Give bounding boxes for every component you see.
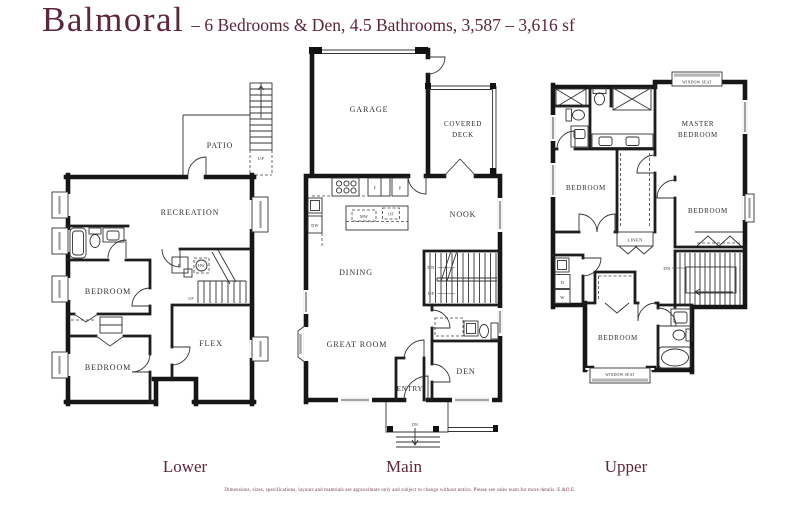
oven-label: OF [388, 212, 394, 217]
main-stairs [424, 251, 500, 305]
room-label-bedroom-a: BEDROOM [85, 287, 131, 296]
sink-icon [103, 228, 124, 242]
floor-label-main: Main [386, 457, 422, 477]
sink-icon [571, 126, 588, 147]
lower-exterior-stairs [250, 83, 272, 175]
french-doors [444, 159, 476, 176]
stairs-dn-label: DN [663, 266, 671, 271]
covered-deck-outline [425, 83, 496, 174]
room-label-covered-deck-2: DECK [452, 131, 474, 139]
porch-dn-label: DN [412, 423, 418, 427]
room-label-bedroom-a: BEDROOM [566, 184, 606, 192]
room-label-bedroom-b: BEDROOM [688, 207, 728, 215]
fridge-label: F [374, 186, 377, 191]
floor-label-lower: Lower [163, 457, 207, 477]
linen-label: LINEN [627, 238, 643, 243]
lower-closets [71, 314, 124, 346]
master-ensuite [556, 88, 653, 228]
room-label-covered-deck-1: COVERED [444, 120, 482, 128]
floor-label-upper: Upper [605, 457, 647, 477]
room-label-bedroom-b: BEDROOM [85, 363, 131, 372]
freezer-label: F [178, 263, 181, 268]
double-vanity [592, 134, 653, 148]
dryer-label: D [561, 280, 565, 285]
room-label-entry: ENTRY [397, 385, 423, 393]
room-label-great-room: GREAT ROOM [327, 340, 388, 349]
bedroom-b-closet [695, 232, 743, 246]
hot-water-label: HW [198, 264, 205, 268]
room-label-bedroom-c: BEDROOM [598, 334, 638, 342]
bedroom-c-closet [599, 276, 633, 313]
garage-door [322, 50, 415, 54]
washer-label: W [560, 295, 565, 300]
room-label-recreation: RECREATION [161, 208, 220, 217]
room-label-master-1: MASTER [682, 120, 715, 128]
pantry-label: P [399, 186, 402, 191]
disclaimer-text: Dimensions, sizes, specifications, layou… [224, 488, 575, 493]
toilet-icon [566, 109, 585, 121]
room-label-patio: PATIO [207, 141, 233, 150]
stairs-up-label: UP [428, 291, 435, 296]
room-label-garage: GARAGE [350, 105, 389, 114]
up-arrow-icon [258, 86, 264, 96]
room-label-dining: DINING [339, 268, 373, 277]
veranda-railing [448, 428, 497, 432]
floor-plans-canvas: PATIO RECREATION BEDROOM BEDROOM FLEX UP… [0, 0, 800, 507]
room-label-master-2: BEDROOM [678, 131, 718, 139]
window-seat-top-label: WINDOW SEAT [682, 81, 712, 85]
lower-doors [108, 157, 206, 372]
upper-walls [553, 82, 745, 372]
microwave-label: MW [360, 214, 368, 219]
upper-stairs [672, 253, 740, 305]
toilet-icon [480, 323, 499, 339]
upper-bathroom [659, 309, 692, 368]
floorplan-page: Balmoral– 6 Bedrooms & Den, 4.5 Bathroom… [0, 0, 800, 507]
upper-floor-plan: MASTER BEDROOM BEDROOM BEDROOM BEDROOM L… [551, 72, 754, 383]
main-bathroom [432, 305, 500, 341]
stairs-up-label: UP [188, 297, 194, 301]
kitchen-island [346, 206, 408, 230]
exterior-stairs-up-label: UP [258, 156, 265, 161]
bathtub-icon [659, 347, 691, 368]
dn-arrow-icon [695, 289, 733, 295]
toilet-icon [673, 329, 692, 341]
fridge-icon [368, 178, 390, 196]
front-porch [386, 402, 498, 447]
dishwasher-label: DW [311, 223, 318, 228]
lower-floor-plan: PATIO RECREATION BEDROOM BEDROOM FLEX UP… [52, 83, 272, 404]
window-seat-bottom-label: WINDOW SEAT [605, 373, 635, 377]
toilet-icon [89, 228, 101, 248]
upper-windows [551, 72, 754, 383]
lower-windows [52, 192, 268, 378]
room-label-nook: NOOK [450, 210, 477, 219]
room-label-flex: FLEX [199, 339, 223, 348]
room-label-den: DEN [456, 367, 475, 376]
main-floor-plan: GARAGE COVERED DECK NOOK DINING GREAT RO… [298, 47, 502, 447]
linen-closet [617, 232, 653, 254]
toilet-icon [593, 88, 606, 105]
stairs-dn-label: DN [427, 265, 435, 270]
